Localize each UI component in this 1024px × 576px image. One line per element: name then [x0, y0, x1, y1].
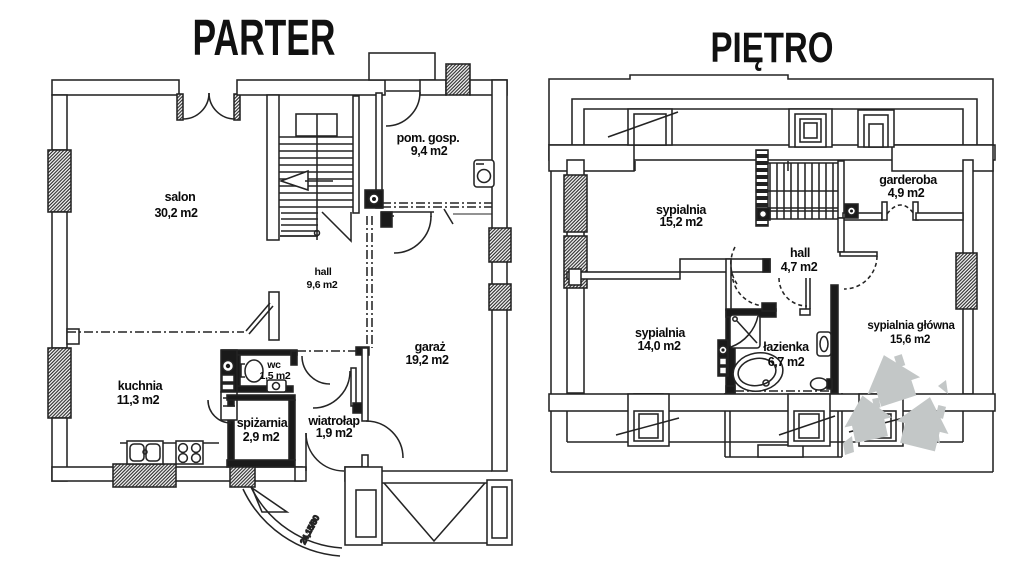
svg-text:2,9 m2: 2,9 m2 — [243, 430, 280, 444]
svg-text:11,3 m2: 11,3 m2 — [117, 393, 160, 407]
svg-text:hall: hall — [315, 266, 332, 278]
svg-text:9,6 m2: 9,6 m2 — [307, 279, 338, 291]
svg-text:hall: hall — [790, 246, 810, 260]
svg-text:1,5 m2: 1,5 m2 — [260, 370, 291, 382]
svg-text:6,7 m2: 6,7 m2 — [768, 355, 805, 369]
svg-text:14,0 m2: 14,0 m2 — [637, 339, 681, 353]
svg-text:19,2 m2: 19,2 m2 — [405, 353, 449, 367]
svg-text:sypialnia główna: sypialnia główna — [867, 320, 955, 332]
svg-text:4,9 m2: 4,9 m2 — [888, 186, 925, 200]
svg-text:pom. gosp.: pom. gosp. — [397, 131, 460, 145]
svg-text:kuchnia: kuchnia — [118, 379, 164, 393]
svg-text:garderoba: garderoba — [879, 173, 938, 187]
svg-text:garaż: garaż — [415, 340, 446, 354]
svg-text:PIĘTRO: PIĘTRO — [711, 24, 834, 72]
svg-text:30,2 m2: 30,2 m2 — [154, 206, 198, 220]
svg-text:1,9 m2: 1,9 m2 — [316, 426, 353, 440]
svg-text:15,6 m2: 15,6 m2 — [890, 334, 930, 346]
svg-text:9,4 m2: 9,4 m2 — [411, 144, 448, 158]
svg-text:PARTER: PARTER — [193, 9, 336, 66]
svg-text:15,2 m2: 15,2 m2 — [659, 215, 703, 229]
svg-text:sypialnia: sypialnia — [635, 326, 686, 340]
svg-text:salon: salon — [165, 190, 196, 204]
svg-text:4,7 m2: 4,7 m2 — [781, 260, 818, 274]
svg-text:łazienka: łazienka — [763, 340, 810, 354]
svg-text:spiżarnia: spiżarnia — [237, 416, 289, 430]
